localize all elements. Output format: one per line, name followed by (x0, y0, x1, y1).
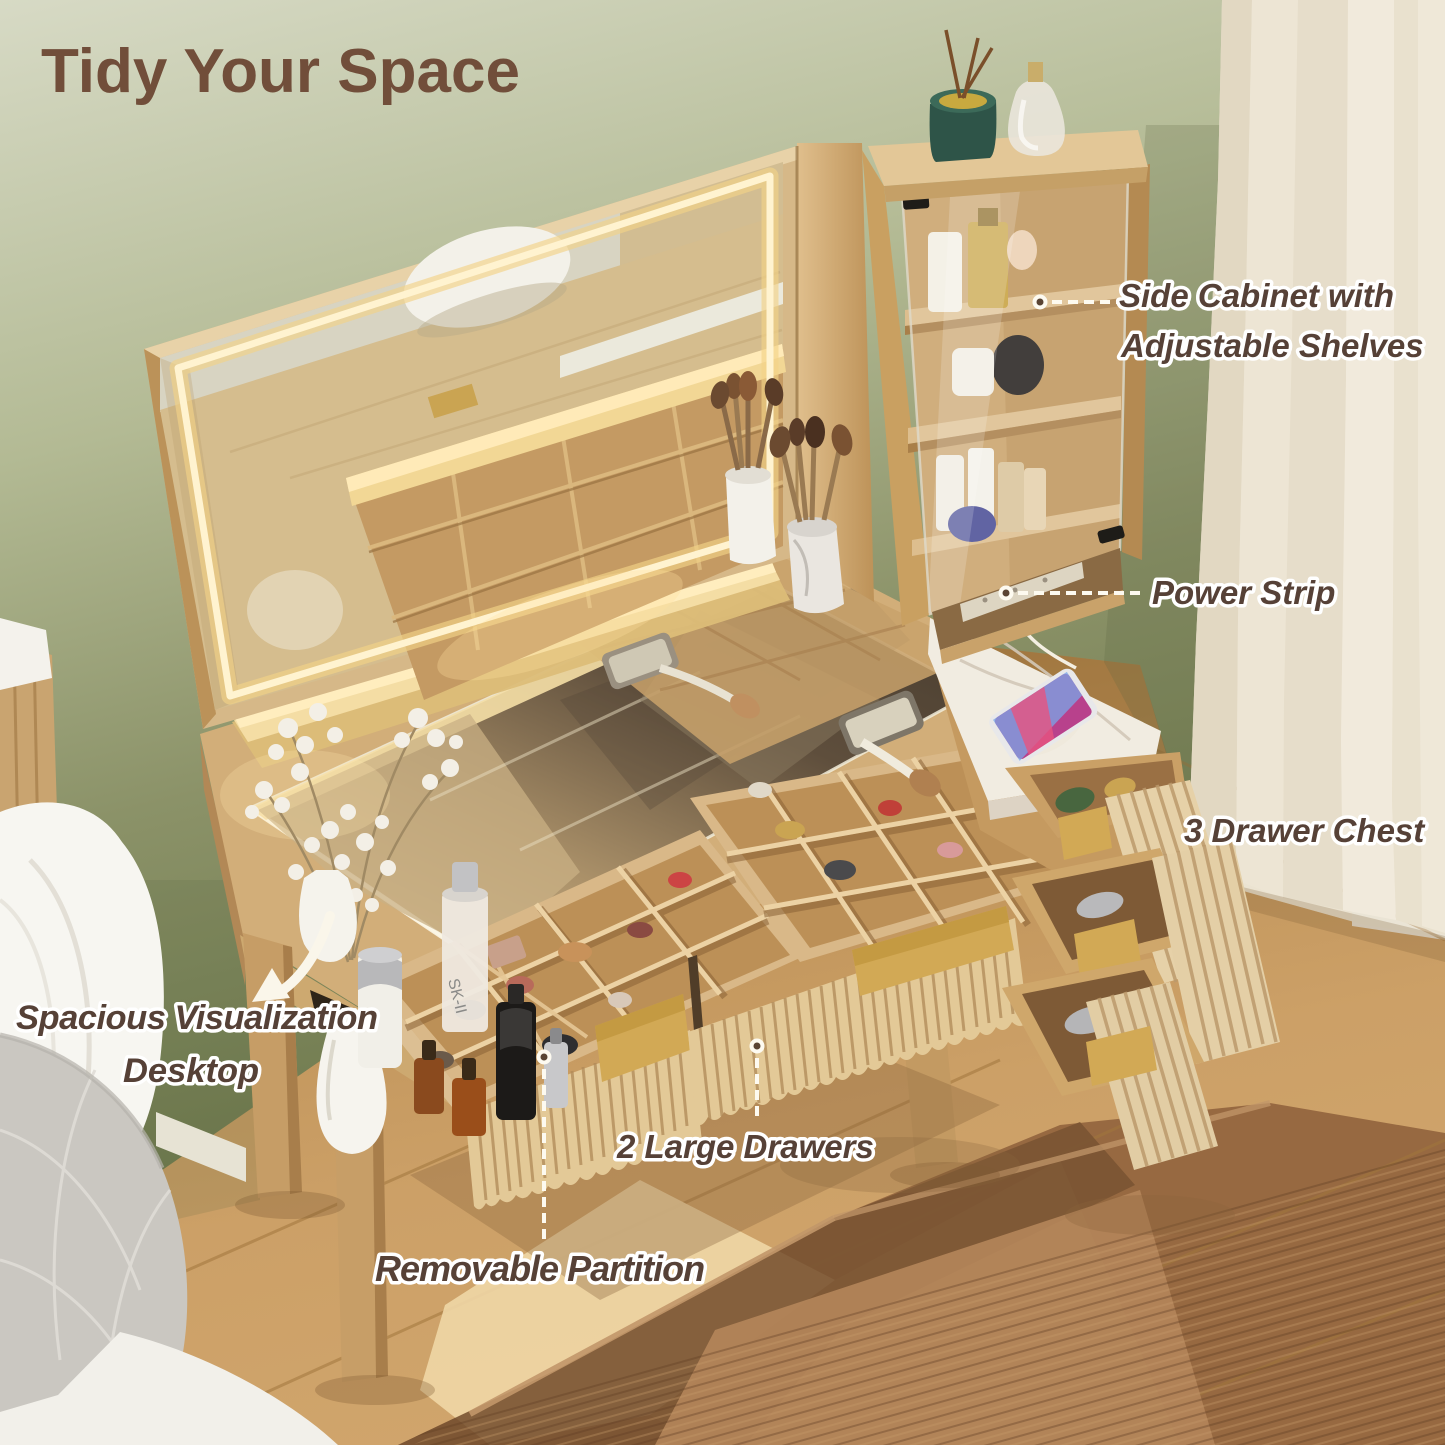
svg-text:Adjustable Shelves: Adjustable Shelves (1120, 327, 1424, 364)
svg-text:Power Strip: Power Strip (1152, 574, 1335, 611)
svg-text:Spacious Visualization: Spacious Visualization (16, 999, 378, 1037)
svg-text:3 Drawer Chest: 3 Drawer Chest (1184, 812, 1426, 849)
svg-text:Desktop: Desktop (123, 1052, 259, 1090)
svg-text:Removable Partition: Removable Partition (375, 1248, 704, 1289)
svg-text:Tidy Your Space: Tidy Your Space (41, 37, 520, 106)
svg-text:Side Cabinet with: Side Cabinet with (1119, 277, 1394, 314)
svg-text:2 Large Drawers: 2 Large Drawers (616, 1128, 874, 1165)
